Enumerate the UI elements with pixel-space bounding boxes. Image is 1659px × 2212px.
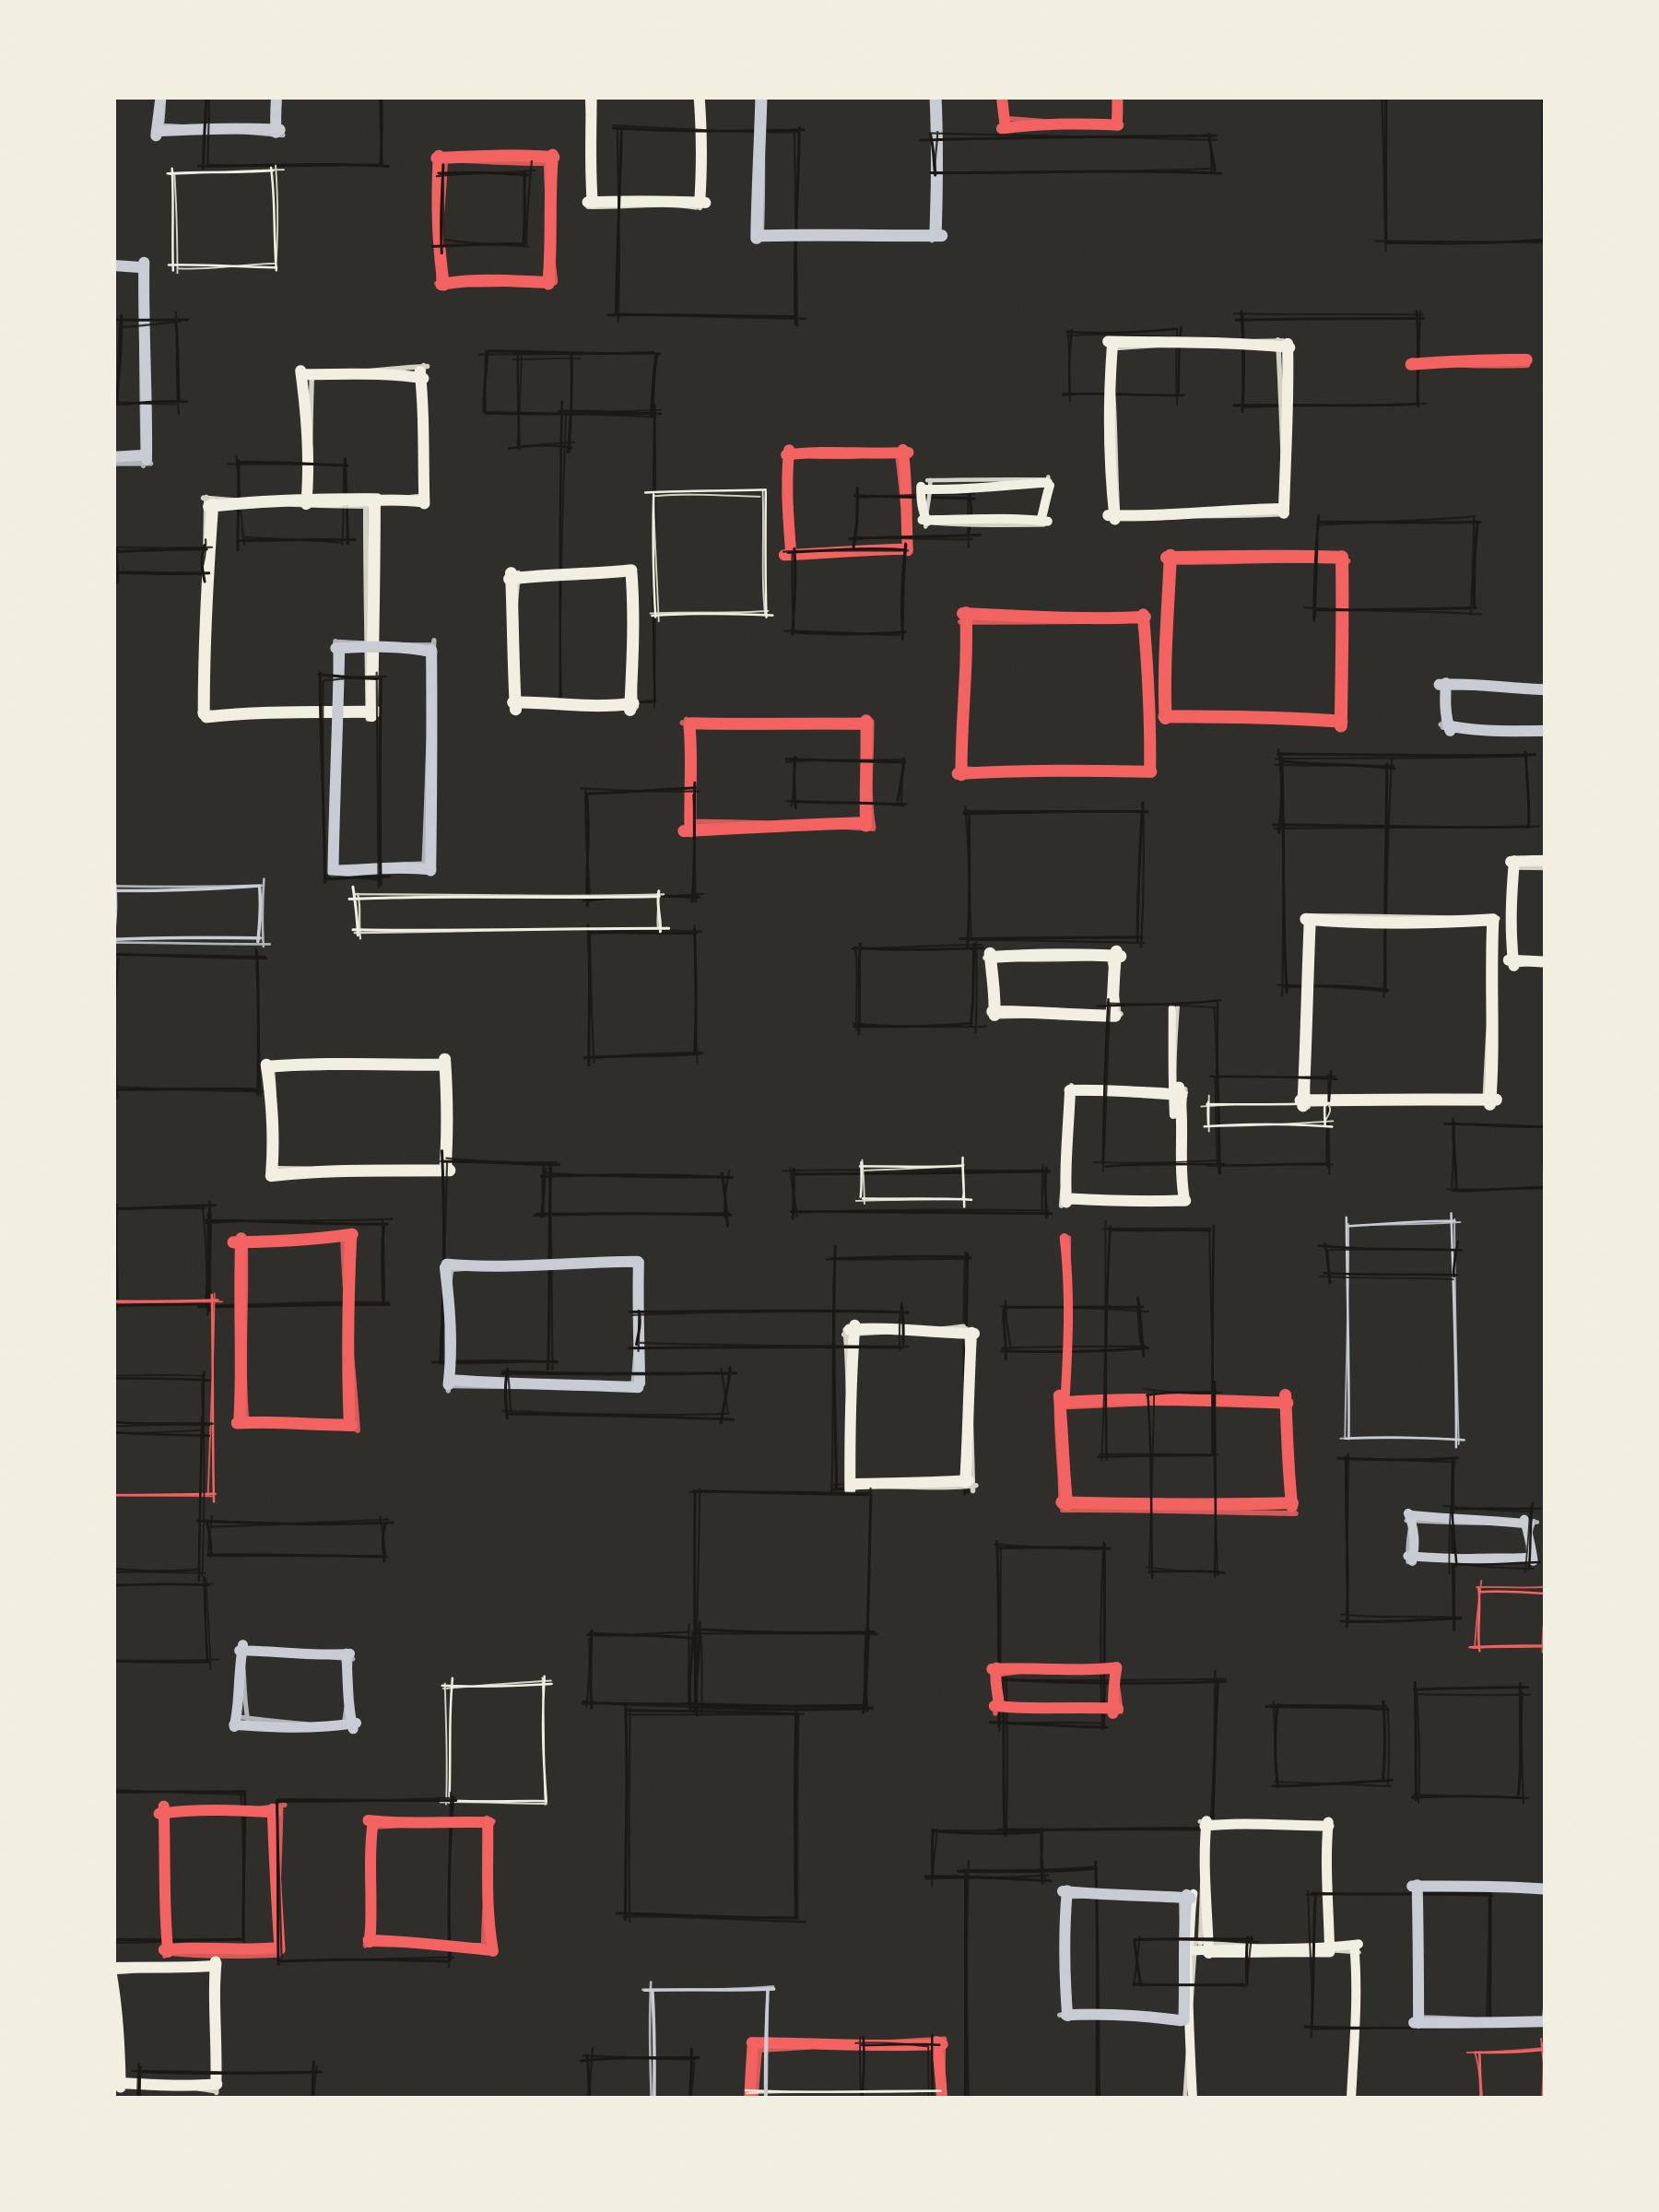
art-print-page — [0, 0, 1659, 2212]
grain-overlay — [0, 0, 1659, 2212]
artwork-svg — [0, 0, 1659, 2212]
